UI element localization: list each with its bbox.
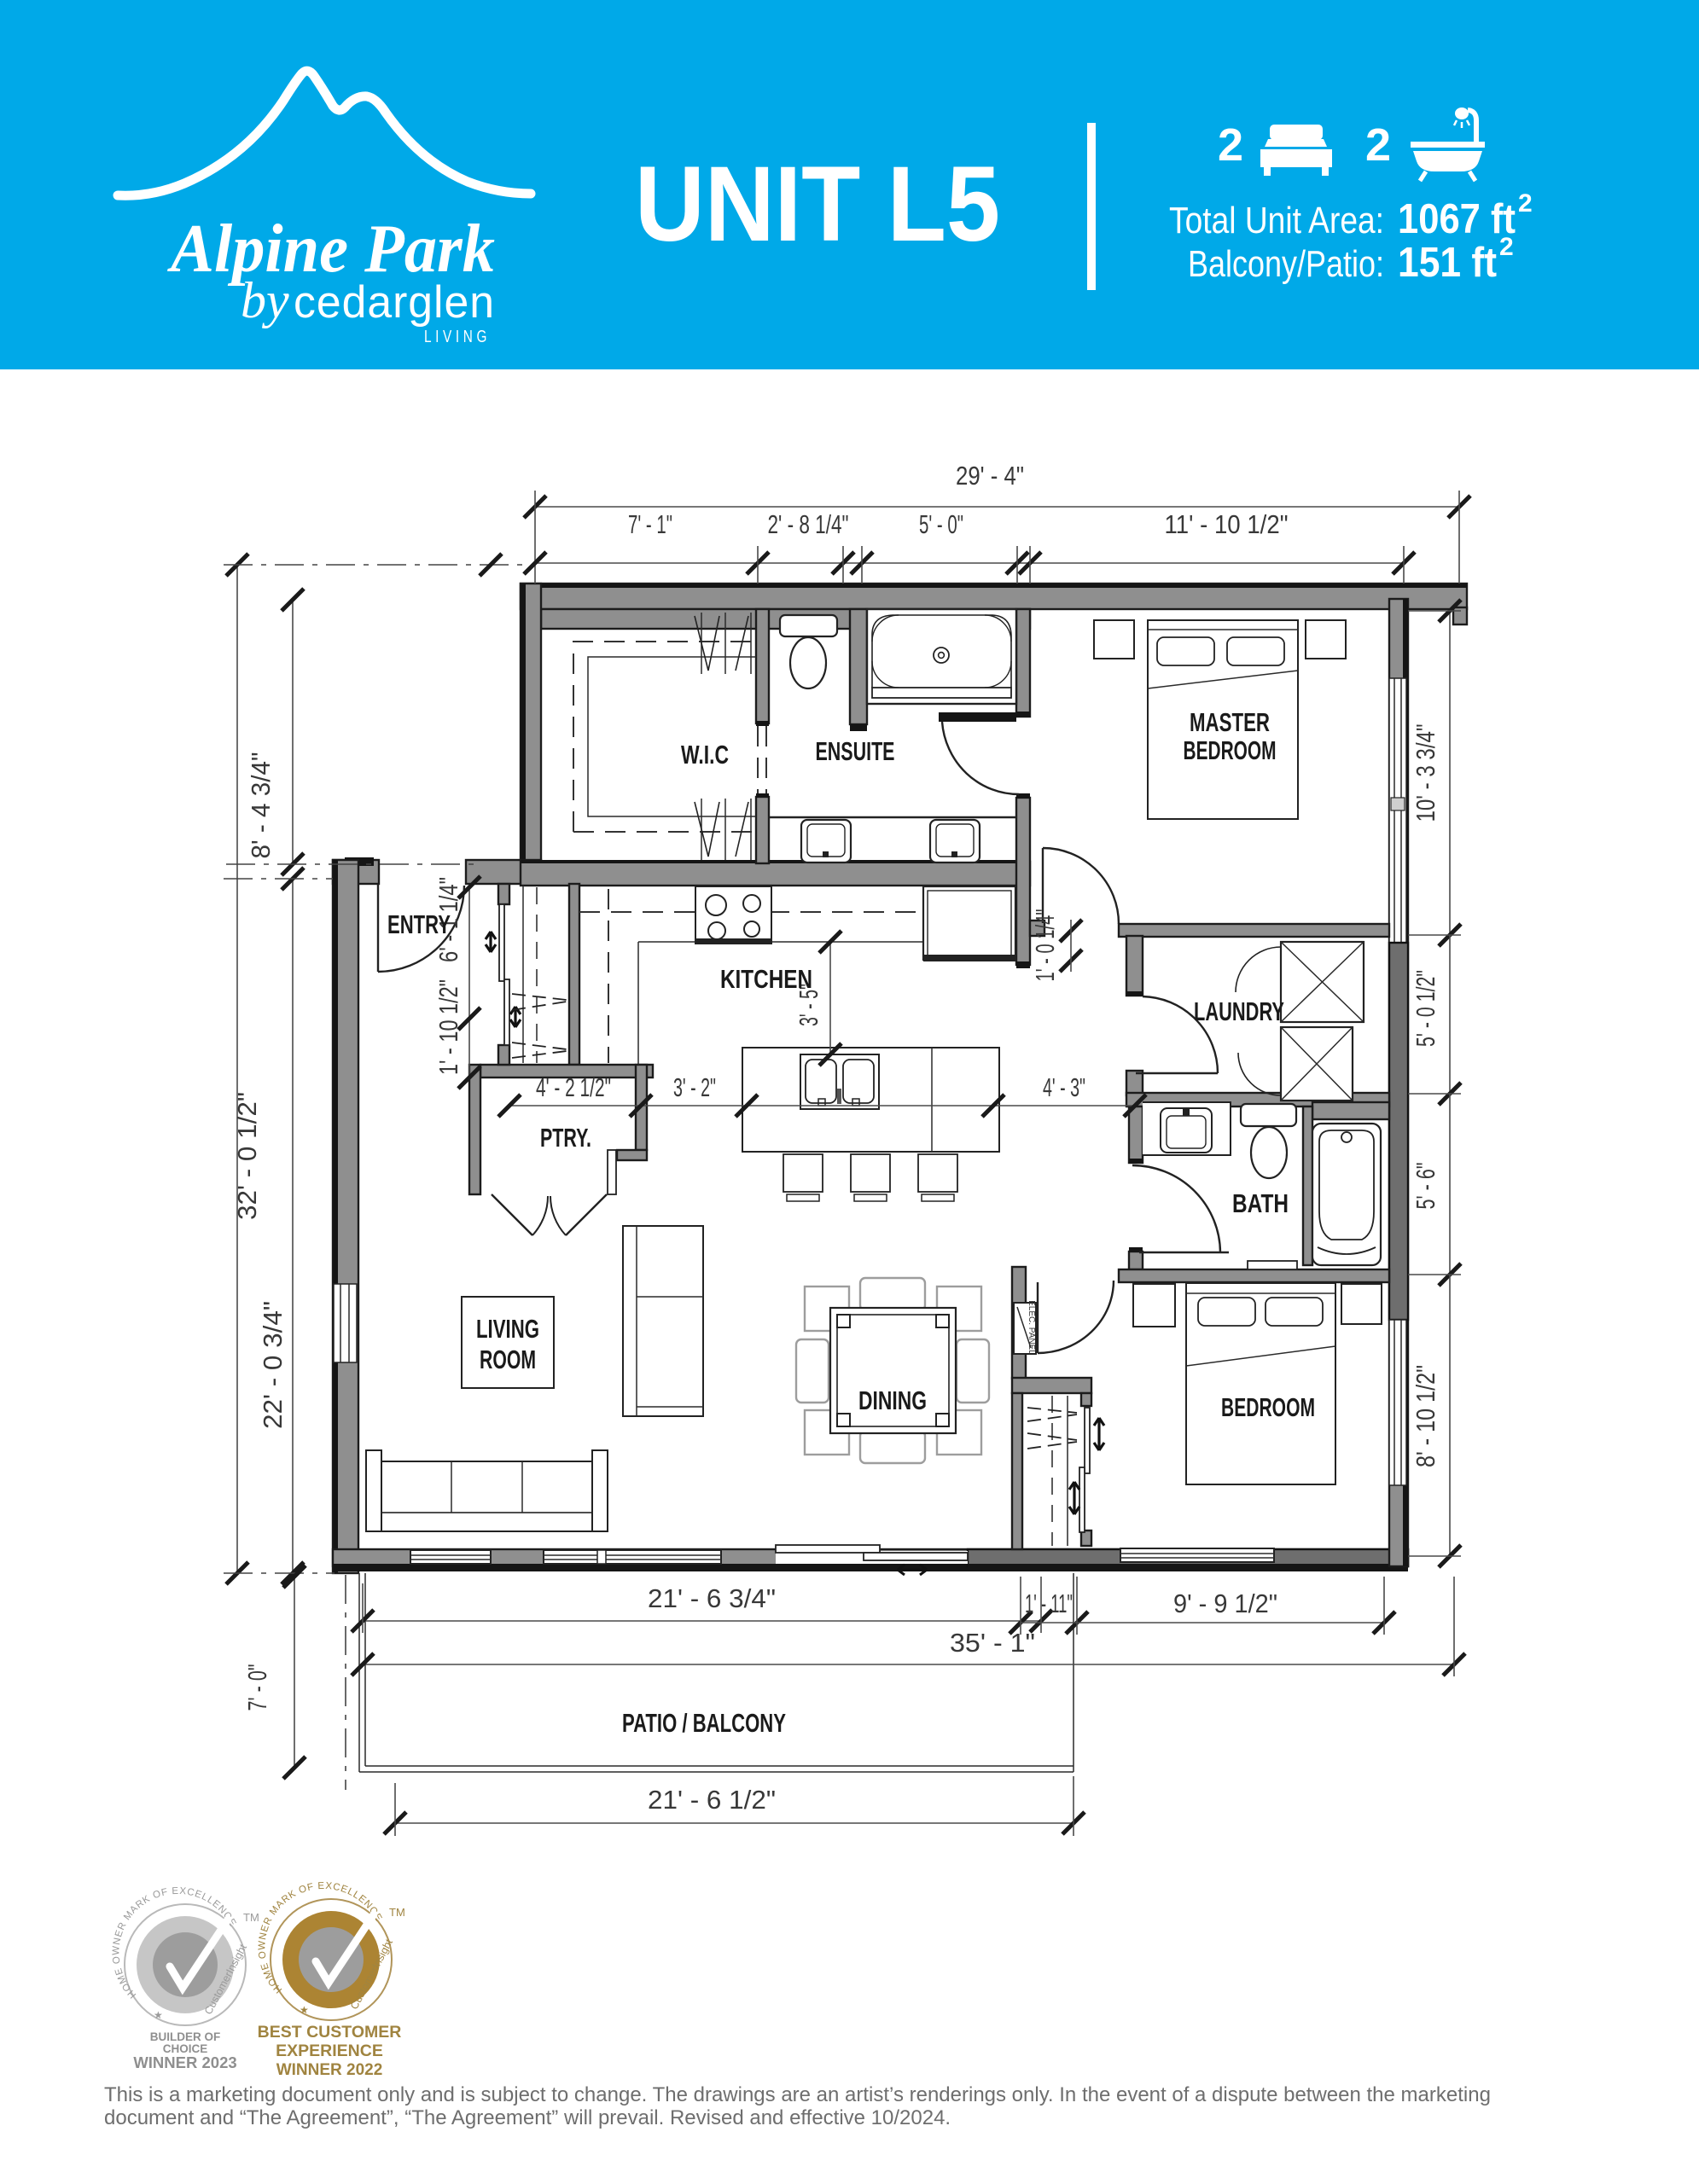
svg-text:BEDROOM: BEDROOM: [1221, 1392, 1315, 1422]
svg-text:UNIT L5: UNIT L5: [635, 145, 1000, 264]
svg-text:Balcony/Patio:: Balcony/Patio:: [1188, 243, 1384, 285]
svg-text:LIVING: LIVING: [476, 1314, 539, 1344]
svg-text:DINING: DINING: [858, 1385, 927, 1415]
svg-text:151 ft: 151 ft: [1398, 240, 1497, 286]
svg-text:9' - 9 1/2": 9' - 9 1/2": [1173, 1589, 1277, 1618]
svg-text:★: ★: [154, 2009, 163, 2021]
svg-text:BEST CUSTOMER: BEST CUSTOMER: [258, 2023, 402, 2042]
svg-text:ENTRY: ENTRY: [387, 909, 451, 939]
svg-text:2: 2: [1499, 233, 1514, 261]
svg-text:3' - 2": 3' - 2": [673, 1072, 716, 1102]
svg-text:7' - 0": 7' - 0": [242, 1664, 272, 1711]
svg-text:8' - 10 1/2": 8' - 10 1/2": [1411, 1365, 1440, 1467]
svg-text:This is a marketing document o: This is a marketing document only and is…: [104, 2083, 1491, 2106]
svg-text:29' - 4": 29' - 4": [956, 461, 1024, 491]
svg-text:ELEC. PANEL: ELEC. PANEL: [1027, 1300, 1036, 1355]
svg-text:21' - 6 3/4": 21' - 6 3/4": [648, 1583, 776, 1613]
svg-text:1' - 0 1/4": 1' - 0 1/4": [1030, 909, 1060, 982]
svg-text:2: 2: [1218, 119, 1243, 171]
svg-text:BATH: BATH: [1232, 1188, 1289, 1218]
svg-text:1067 ft: 1067 ft: [1398, 196, 1516, 242]
svg-text:PTRY.: PTRY.: [540, 1123, 591, 1153]
svg-text:★: ★: [300, 2004, 309, 2016]
svg-text:4' - 3": 4' - 3": [1043, 1072, 1085, 1102]
svg-text:KITCHEN: KITCHEN: [720, 964, 812, 994]
svg-text:W.I.C: W.I.C: [681, 740, 729, 770]
svg-text:2' - 8 1/4": 2' - 8 1/4": [768, 509, 849, 539]
svg-text:WINNER 2022: WINNER 2022: [276, 2061, 383, 2079]
svg-text:TM: TM: [389, 1906, 405, 1919]
svg-text:ENSUITE: ENSUITE: [816, 736, 895, 766]
svg-text:11' - 10 1/2": 11' - 10 1/2": [1165, 509, 1289, 539]
svg-text:22' - 0 3/4": 22' - 0 3/4": [258, 1301, 288, 1429]
svg-text:35' - 1": 35' - 1": [950, 1628, 1035, 1658]
svg-text:7' - 1": 7' - 1": [628, 509, 672, 539]
svg-text:10' - 3 3/4": 10' - 3 3/4": [1411, 724, 1440, 822]
svg-text:PATIO / BALCONY: PATIO / BALCONY: [622, 1708, 786, 1738]
svg-text:document and “The Agreement”,: document and “The Agreement”, “The Agree…: [104, 2106, 951, 2129]
svg-text:8' - 4 3/4": 8' - 4 3/4": [246, 752, 276, 859]
svg-text:TM: TM: [243, 1911, 259, 1924]
svg-text:Total Unit Area:: Total Unit Area:: [1169, 200, 1384, 241]
svg-text:1' - 11": 1' - 11": [1025, 1589, 1073, 1618]
svg-text:5' - 6": 5' - 6": [1411, 1163, 1440, 1210]
svg-text:cedarglen: cedarglen: [294, 277, 495, 328]
svg-text:LIVING: LIVING: [424, 328, 491, 346]
svg-text:BEDROOM: BEDROOM: [1184, 735, 1277, 765]
svg-text:ROOM: ROOM: [480, 1345, 536, 1374]
svg-text:WINNER 2023: WINNER 2023: [133, 2053, 236, 2071]
svg-text:LAUNDRY: LAUNDRY: [1194, 996, 1284, 1026]
svg-text:5' - 0 1/2": 5' - 0 1/2": [1411, 970, 1440, 1047]
svg-text:Alpine Park: Alpine Park: [166, 212, 495, 287]
svg-text:EXPERIENCE: EXPERIENCE: [276, 2042, 383, 2060]
svg-text:21' - 6 1/2": 21' - 6 1/2": [648, 1785, 776, 1815]
svg-text:1' - 10 1/2": 1' - 10 1/2": [433, 979, 463, 1075]
svg-text:32' - 0 1/2": 32' - 0 1/2": [232, 1092, 262, 1220]
svg-text:MASTER: MASTER: [1190, 707, 1270, 737]
svg-text:by: by: [241, 272, 289, 328]
svg-text:BUILDER OF: BUILDER OF: [150, 2030, 221, 2043]
svg-text:2: 2: [1365, 119, 1391, 171]
svg-text:2: 2: [1518, 189, 1533, 218]
svg-text:4' - 2 1/2": 4' - 2 1/2": [536, 1072, 611, 1102]
svg-text:5' - 0": 5' - 0": [919, 509, 963, 539]
